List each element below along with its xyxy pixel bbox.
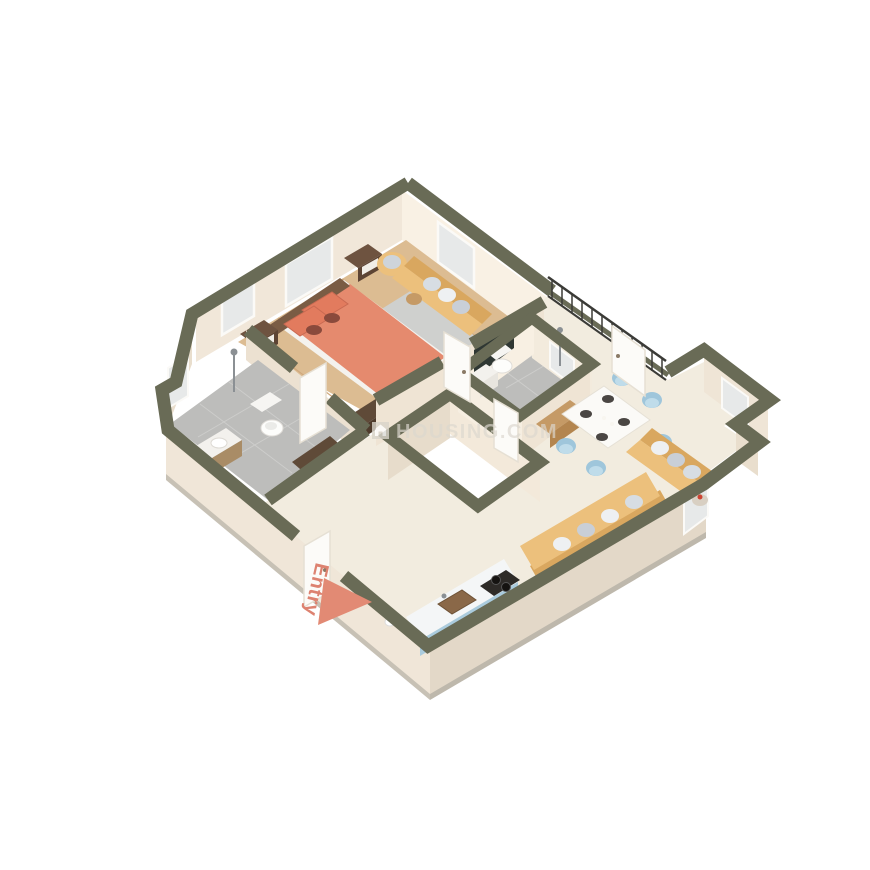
stove-burner-2	[502, 583, 511, 592]
dining-chair-2-seat	[645, 398, 659, 408]
sofa-long-pillow-1	[625, 495, 643, 509]
dining-plate-2	[602, 395, 614, 403]
stove-burner-1	[492, 576, 501, 585]
bathroom1-door	[300, 363, 326, 443]
sofa-long-pillow-4	[553, 537, 571, 551]
bedroom-sofa-pillow-3	[452, 300, 470, 314]
watermark: HOUSING.COM	[372, 421, 558, 443]
sofa-right-pillow-2	[667, 453, 685, 467]
dining-candle-2	[610, 422, 614, 426]
dining-plate-3	[618, 418, 630, 426]
watermark-text: HOUSING.COM	[396, 421, 558, 443]
bedroom-side-table	[406, 293, 422, 305]
sofa-long-pillow-3	[577, 523, 595, 537]
floorplan-svg: HOUSING.COM Entry	[0, 0, 870, 870]
sofa-right-pillow-1	[651, 441, 669, 455]
sofa-long-pillow-2	[601, 509, 619, 523]
floorplan-stage: HOUSING.COM Entry	[0, 0, 870, 870]
bedroom-sofa-pillow-2	[438, 288, 456, 302]
bed-cushion-1	[324, 313, 340, 323]
dining-candle-1	[602, 416, 606, 420]
sofa-right-pillow-3	[683, 465, 701, 479]
kitchen-faucet	[442, 594, 447, 599]
bedroom-door-knob	[462, 370, 466, 374]
toilet-seat	[265, 422, 277, 430]
bed-cushion-2	[306, 325, 322, 335]
dining-chair-3-seat	[559, 444, 573, 454]
accent-table-flower	[698, 495, 703, 500]
dining-chair-4-seat	[589, 466, 603, 476]
bedroom-sofa-pillow-1	[423, 277, 441, 291]
bedroom-armchair-cushion	[383, 255, 401, 269]
dining-plate-1	[580, 410, 592, 418]
balcony-door-knob	[616, 354, 620, 358]
shower-head	[231, 349, 238, 356]
dining-plate-4	[596, 433, 608, 441]
washbasin-bowl	[211, 438, 227, 448]
